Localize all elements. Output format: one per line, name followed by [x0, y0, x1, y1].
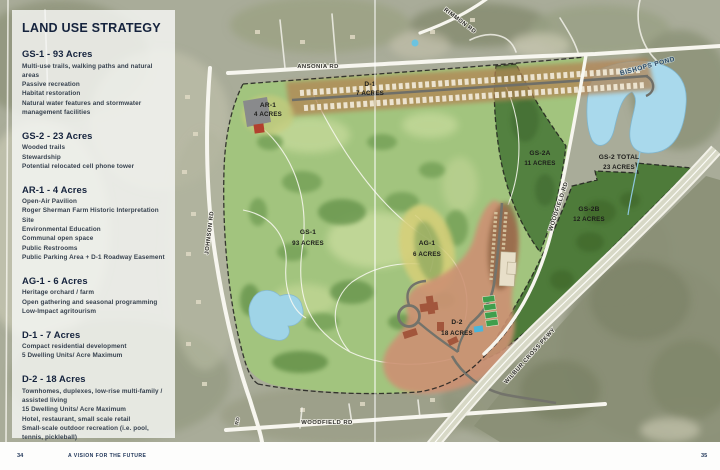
- legend-section-ag1: AG-1 - 6 Acres Heritage orchard / farm O…: [22, 275, 166, 316]
- legend-item: Roger Sherman Farm Historic Interpretati…: [22, 206, 166, 225]
- legend-heading: AR-1 - 4 Acres: [22, 184, 166, 195]
- legend-item: Open gathering and seasonal programming: [22, 298, 166, 307]
- legend-item: Small-scale outdoor recreation (i.e. poo…: [22, 424, 166, 443]
- legend-item: Public Parking Area + D-1 Roadway Easeme…: [22, 253, 166, 262]
- legend-item: Hotel, restaurant, small scale retail: [22, 415, 166, 424]
- page-gutter: [374, 0, 376, 442]
- page-number-left: 34: [17, 453, 23, 459]
- zone-label-gs2total-1: GS-2 TOTAL: [599, 154, 640, 161]
- legend-heading: GS-2 - 23 Acres: [22, 130, 166, 141]
- legend-item: Stewardship: [22, 153, 166, 162]
- zone-label-ar1-2: 4 ACRES: [254, 111, 282, 118]
- legend-item: Potential relocated cell phone tower: [22, 162, 166, 171]
- zone-label-gs2a-2: 11 ACRES: [524, 160, 555, 167]
- zone-label-gs2b-2: 12 ACRES: [573, 216, 605, 223]
- legend-heading: AG-1 - 6 Acres: [22, 275, 166, 286]
- footer: 34 A VISION FOR THE FUTURE 35: [0, 442, 720, 470]
- pavilion-building: [253, 123, 264, 133]
- legend-item: 5 Dwelling Units/ Acre Maximum: [22, 351, 166, 360]
- road-label-ansonia: ANSONIA RD: [297, 64, 339, 70]
- page-number-right: 35: [701, 453, 707, 459]
- legend-panel: LAND USE STRATEGY GS-1 - 93 Acres Multi-…: [12, 10, 175, 438]
- zone-label-d2-2: 18 ACRES: [441, 330, 473, 337]
- legend-heading: D-1 - 7 Acres: [22, 329, 166, 340]
- page-title: LAND USE STRATEGY: [22, 21, 166, 35]
- legend-item: Compact residential development: [22, 342, 166, 351]
- legend-heading: D-2 - 18 Acres: [22, 373, 166, 384]
- legend-item: Public Restrooms: [22, 244, 166, 253]
- legend-item: Habitat restoration: [22, 89, 166, 98]
- legend-item: Townhomes, duplexes, low-rise multi-fami…: [22, 387, 166, 406]
- zone-label-gs1-1: GS-1: [300, 229, 316, 236]
- pool: [474, 325, 484, 332]
- legend-section-d2: D-2 - 18 Acres Townhomes, duplexes, low-…: [22, 373, 166, 452]
- legend-heading: GS-1 - 93 Acres: [22, 48, 166, 59]
- zone-label-ag1-2: 6 ACRES: [413, 251, 441, 258]
- footer-tagline: A VISION FOR THE FUTURE: [68, 453, 146, 459]
- road-label-woodfield-bottom: WOODFIELD RD: [301, 420, 353, 426]
- zone-label-d2-1: D-2: [451, 319, 462, 326]
- zone-label-d1-2: 7 ACRES: [356, 90, 384, 97]
- legend-item: Environmental Education: [22, 225, 166, 234]
- zone-label-ag1-1: AG-1: [419, 240, 436, 247]
- zone-label-ar1-1: AR-1: [260, 102, 276, 109]
- small-pool: [412, 40, 419, 47]
- legend-section-gs1: GS-1 - 93 Acres Multi-use trails, walkin…: [22, 48, 166, 117]
- zone-label-gs2total-2: 23 ACRES: [603, 164, 635, 171]
- legend-item: Open-Air Pavilion: [22, 197, 166, 206]
- legend-section-ar1: AR-1 - 4 Acres Open-Air Pavilion Roger S…: [22, 184, 166, 263]
- page: ANSONIA RD RIMMON RD JOHNSON RD WOODFIEL…: [0, 0, 720, 470]
- legend-section-gs2: GS-2 - 23 Acres Wooded trails Stewardshi…: [22, 130, 166, 171]
- legend-item: Wooded trails: [22, 143, 166, 152]
- legend-item: Natural water features and stormwater ma…: [22, 99, 166, 118]
- d2-main-building: [499, 252, 517, 287]
- zone-label-gs2a-1: GS-2A: [529, 150, 550, 157]
- legend-item: 15 Dwelling Units/ Acre Maximum: [22, 405, 166, 414]
- legend-section-d1: D-1 - 7 Acres Compact residential develo…: [22, 329, 166, 361]
- legend-item: Passive recreation: [22, 80, 166, 89]
- legend-item: Heritage orchard / farm: [22, 288, 166, 297]
- legend-item: Low-Impact agritourism: [22, 307, 166, 316]
- legend-item: Multi-use trails, walking paths and natu…: [22, 62, 166, 81]
- zone-label-gs2b-1: GS-2B: [578, 206, 599, 213]
- legend-item: Communal open space: [22, 234, 166, 243]
- zone-label-gs1-2: 93 ACRES: [292, 240, 324, 247]
